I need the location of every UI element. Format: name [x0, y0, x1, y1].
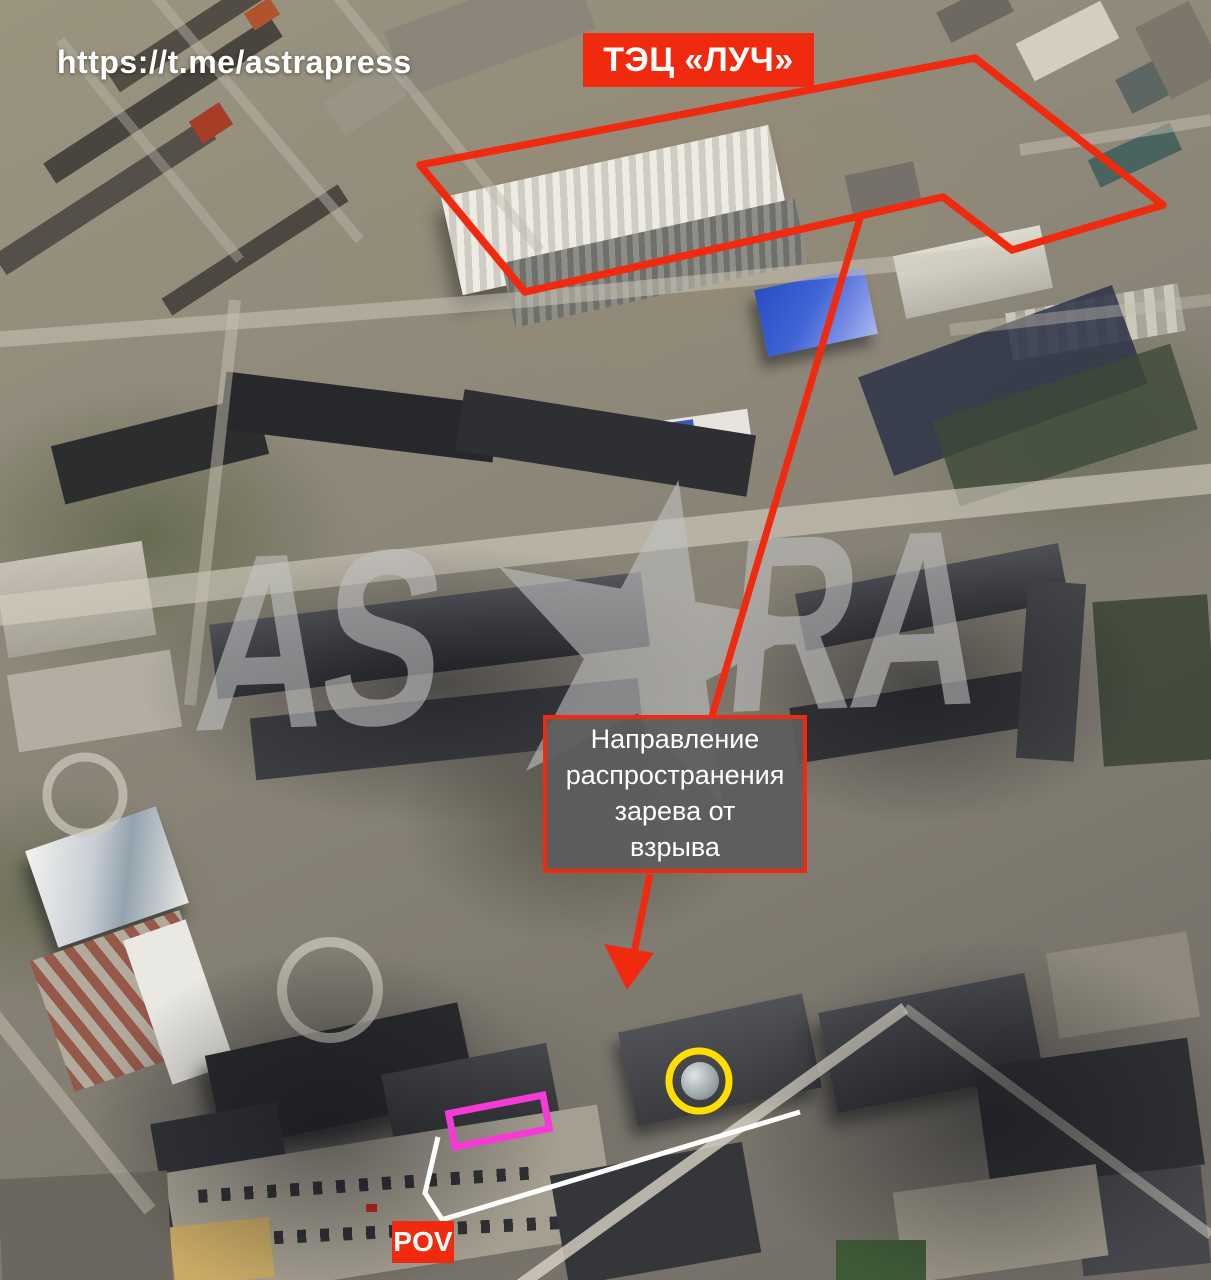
shadow-blob	[90, 950, 560, 1280]
direction-note-box: Направление распространения зарева от вз…	[543, 715, 807, 873]
terrain-shape	[893, 225, 1053, 319]
channel-url-text: https://t.me/astrapress	[57, 44, 412, 81]
terrain-shape	[384, 0, 596, 97]
terrain-shape	[0, 541, 157, 658]
dome-structure	[681, 1062, 719, 1100]
tec-luch-label: ТЭЦ «ЛУЧ»	[583, 33, 814, 87]
apartment-block	[455, 389, 756, 496]
terrain-shape	[845, 161, 922, 215]
terrain-shape	[1016, 1, 1120, 82]
terrain-shape	[1088, 122, 1182, 187]
terrain-shape	[936, 0, 1014, 43]
blue-roof-building	[754, 267, 878, 357]
terrain-shape	[1031, 91, 1114, 155]
terrain-shape	[161, 184, 348, 315]
pov-label: POV	[392, 1221, 454, 1263]
annotated-satellite-image: AS RA https://t.me/astrapress ТЭЦ «ЛУЧ» …	[0, 0, 1211, 1280]
